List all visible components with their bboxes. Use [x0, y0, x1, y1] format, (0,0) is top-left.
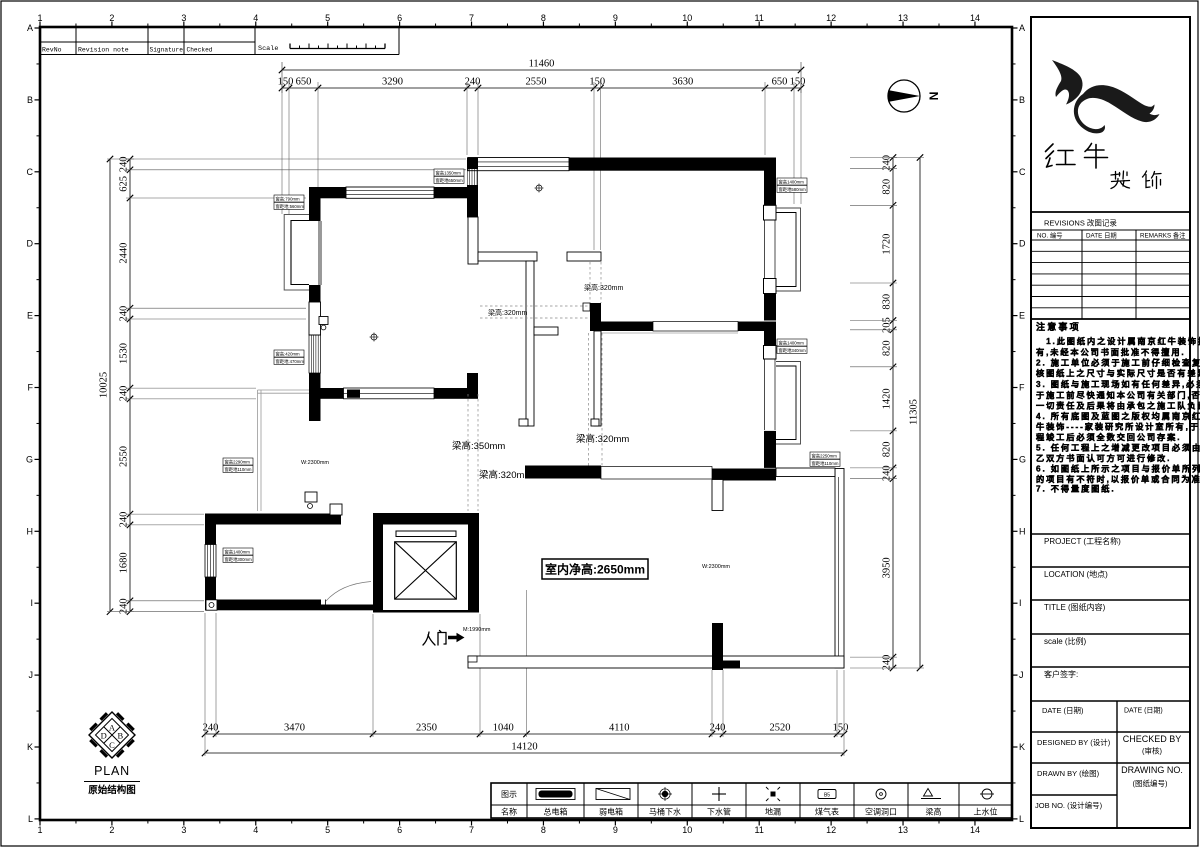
svg-text:K: K: [27, 742, 33, 752]
svg-text:14: 14: [970, 825, 980, 835]
svg-text:N: N: [927, 92, 941, 101]
svg-text:2520: 2520: [770, 723, 791, 734]
svg-text:11: 11: [755, 825, 764, 835]
svg-text:625: 625: [119, 176, 130, 192]
svg-text:客户签字:: 客户签字:: [1044, 669, 1078, 679]
svg-text:(图纸编号): (图纸编号): [1133, 778, 1168, 788]
svg-text:E: E: [1019, 311, 1025, 321]
svg-text:梁高:320mm: 梁高:320mm: [584, 283, 623, 292]
svg-text:650: 650: [772, 77, 788, 88]
svg-text:A: A: [1019, 23, 1025, 33]
svg-text:F: F: [1019, 383, 1025, 393]
svg-text:(审核): (审核): [1142, 746, 1162, 756]
svg-text:空调洞口: 空调洞口: [865, 807, 897, 817]
svg-text:H: H: [1019, 526, 1026, 536]
svg-text:2550: 2550: [526, 77, 547, 88]
svg-text:窗距地650mm: 窗距地650mm: [436, 177, 464, 184]
svg-text:4: 4: [253, 825, 258, 835]
svg-text:B: B: [117, 731, 123, 741]
svg-text:B: B: [27, 95, 33, 105]
svg-text:3. 图纸与施工现场如有任何差异,必须: 3. 图纸与施工现场如有任何差异,必须: [1036, 379, 1200, 389]
svg-text:3470: 3470: [284, 723, 305, 734]
svg-text:名称: 名称: [501, 807, 517, 817]
svg-text:有,未经本公司书面批准不得擅用.: 有,未经本公司书面批准不得擅用.: [1036, 347, 1186, 357]
svg-text:D: D: [27, 239, 34, 249]
svg-text:1.此图纸内之设计属南京红牛装饰拥: 1.此图纸内之设计属南京红牛装饰拥: [1036, 336, 1200, 346]
svg-text:牛装饰----家装研究所设计室所有,于工: 牛装饰----家装研究所设计室所有,于工: [1036, 422, 1200, 432]
svg-text:14120: 14120: [511, 742, 537, 753]
svg-text:梁高: 梁高: [926, 807, 942, 817]
svg-text:窗距地110mm: 窗距地110mm: [812, 460, 839, 467]
svg-text:B: B: [1019, 95, 1025, 105]
svg-text:K: K: [1019, 742, 1025, 752]
svg-text:9: 9: [613, 825, 618, 835]
svg-text:窗距地:560mm: 窗距地:560mm: [276, 203, 305, 210]
svg-text:scale (比例): scale (比例): [1044, 636, 1087, 646]
svg-text:窗高1350mm: 窗高1350mm: [436, 169, 462, 176]
svg-text:2550: 2550: [119, 446, 130, 467]
svg-text:2350: 2350: [416, 723, 437, 734]
svg-text:10: 10: [682, 825, 692, 835]
svg-text:乙双方书面认可方可进行修改.: 乙双方书面认可方可进行修改.: [1036, 453, 1171, 463]
svg-text:核图纸上之尺寸与实际尺寸是否有差异.: 核图纸上之尺寸与实际尺寸是否有差异.: [1036, 368, 1200, 378]
svg-text:DRAWN BY (绘图): DRAWN BY (绘图): [1037, 768, 1100, 778]
svg-text:D: D: [101, 731, 107, 741]
svg-text:1420: 1420: [882, 388, 893, 409]
svg-text:J: J: [1019, 670, 1024, 680]
svg-text:下水管: 下水管: [707, 807, 731, 817]
svg-text:M:1990mm: M:1990mm: [463, 627, 491, 633]
svg-text:窗高2250mm: 窗高2250mm: [812, 452, 838, 459]
svg-text:梁高:320mm: 梁高:320mm: [479, 469, 532, 481]
svg-text:8: 8: [541, 825, 546, 835]
svg-text:3290: 3290: [382, 77, 403, 88]
svg-text:程竣工后必须全数交回公司存案.: 程竣工后必须全数交回公司存案.: [1035, 432, 1181, 442]
svg-text:Checked: Checked: [187, 47, 213, 54]
svg-text:于施工前尽快通知本公司有关部门,否则: 于施工前尽快通知本公司有关部门,否则: [1036, 390, 1200, 400]
svg-text:窗高1400mm: 窗高1400mm: [225, 548, 251, 555]
svg-text:12: 12: [826, 825, 836, 835]
svg-text:6: 6: [397, 825, 402, 835]
svg-text:DRAWING NO.: DRAWING NO.: [1121, 765, 1183, 775]
svg-text:L: L: [28, 814, 33, 824]
svg-text:7: 7: [469, 825, 474, 835]
svg-text:上水位: 上水位: [974, 807, 998, 817]
svg-text:4110: 4110: [609, 723, 630, 734]
svg-text:室内净高:2650mm: 室内净高:2650mm: [545, 562, 645, 577]
svg-text:注意事项: 注意事项: [1036, 321, 1081, 332]
svg-text:1530: 1530: [119, 343, 130, 364]
svg-text:11305: 11305: [909, 399, 920, 425]
svg-text:830: 830: [882, 294, 893, 310]
svg-text:弱电箱: 弱电箱: [599, 807, 623, 817]
svg-text:3630: 3630: [672, 77, 693, 88]
svg-text:7. 不得量度图纸.: 7. 不得量度图纸.: [1036, 484, 1116, 494]
svg-text:820: 820: [882, 340, 893, 356]
svg-text:窗高1400mm: 窗高1400mm: [779, 339, 805, 346]
svg-text:马桶下水: 马桶下水: [649, 807, 681, 817]
svg-text:梁高:320mm: 梁高:320mm: [576, 433, 629, 445]
svg-text:一切责任及后果将由承包之施工队负责.: 一切责任及后果将由承包之施工队负责.: [1036, 401, 1200, 411]
svg-text:C: C: [1019, 167, 1026, 177]
svg-text:A: A: [109, 723, 116, 733]
svg-text:W:2300mm: W:2300mm: [301, 460, 329, 466]
svg-text:6. 如图纸上所示之项目与报价单所列: 6. 如图纸上所示之项目与报价单所列: [1036, 464, 1200, 474]
svg-text:B5: B5: [824, 793, 830, 799]
svg-text:LOCATION (地点): LOCATION (地点): [1044, 569, 1108, 579]
svg-text:I: I: [30, 598, 33, 608]
svg-text:PROJECT (工程名称): PROJECT (工程名称): [1044, 536, 1121, 546]
svg-text:W:2300mm: W:2300mm: [702, 564, 730, 570]
svg-text:D: D: [1019, 239, 1026, 249]
svg-text:J: J: [29, 670, 34, 680]
svg-text:窗高1400mm: 窗高1400mm: [779, 178, 805, 185]
svg-text:REMARKS 备注: REMARKS 备注: [1140, 231, 1186, 240]
svg-text:E: E: [27, 311, 33, 321]
svg-text:1: 1: [37, 825, 42, 835]
svg-text:Signature: Signature: [150, 47, 184, 54]
svg-text:L: L: [1019, 814, 1024, 824]
svg-text:DATE (日期): DATE (日期): [1042, 706, 1084, 715]
svg-text:A: A: [27, 23, 33, 33]
svg-text:窗距地110mm: 窗距地110mm: [225, 466, 252, 473]
svg-text:CHECKED BY: CHECKED BY: [1123, 734, 1182, 744]
svg-text:窗高:420mm: 窗高:420mm: [276, 350, 301, 357]
svg-text:820: 820: [882, 179, 893, 195]
svg-text:C: C: [109, 740, 115, 750]
svg-text:梁高:350mm: 梁高:350mm: [452, 440, 505, 452]
svg-text:窗高2290mm: 窗高2290mm: [225, 458, 251, 465]
svg-text:窗高:790mm: 窗高:790mm: [276, 195, 301, 202]
svg-text:G: G: [1019, 454, 1026, 464]
svg-text:3950: 3950: [882, 557, 893, 578]
svg-text:5: 5: [325, 825, 330, 835]
svg-text:梁高:320mm: 梁高:320mm: [488, 308, 527, 317]
svg-text:205: 205: [882, 317, 893, 333]
svg-text:DESIGNED BY (设计): DESIGNED BY (设计): [1037, 737, 1111, 747]
svg-text:650: 650: [296, 77, 312, 88]
svg-text:窗距地300mm: 窗距地300mm: [225, 556, 253, 563]
svg-text:3: 3: [181, 825, 186, 835]
svg-text:NO. 编号: NO. 编号: [1037, 231, 1063, 240]
svg-text:F: F: [28, 383, 34, 393]
svg-text:图示: 图示: [501, 790, 517, 799]
svg-text:2. 施工单位必须于施工前仔细检查复: 2. 施工单位必须于施工前仔细检查复: [1036, 358, 1200, 368]
svg-text:DATE 日期: DATE 日期: [1086, 232, 1117, 240]
svg-text:820: 820: [882, 442, 893, 458]
svg-text:C: C: [27, 167, 34, 177]
svg-text:TITLE (图纸内容): TITLE (图纸内容): [1044, 602, 1106, 612]
svg-text:5. 任何工程上之增减更改项目必须由甲: 5. 任何工程上之增减更改项目必须由甲: [1036, 443, 1200, 453]
svg-text:窗距地:470mm: 窗距地:470mm: [276, 358, 305, 365]
svg-text:13: 13: [898, 825, 908, 835]
svg-text:11460: 11460: [529, 59, 555, 70]
svg-text:I: I: [1019, 598, 1022, 608]
svg-text:2440: 2440: [119, 243, 130, 264]
svg-text:窗距地340mm: 窗距地340mm: [779, 347, 807, 354]
svg-text:煤气表: 煤气表: [815, 807, 839, 817]
svg-text:Scale: Scale: [258, 45, 278, 53]
svg-text:10025: 10025: [99, 372, 110, 398]
svg-text:1720: 1720: [882, 234, 893, 255]
svg-text:的项目有不符时,以报价单或合同为准.: 的项目有不符时,以报价单或合同为准.: [1036, 474, 1200, 484]
svg-text:1040: 1040: [493, 723, 514, 734]
svg-text:Revision note: Revision note: [78, 47, 129, 54]
svg-text:总电箱: 总电箱: [544, 807, 568, 817]
svg-text:REVISIONS 改图记录: REVISIONS 改图记录: [1044, 218, 1117, 228]
svg-text:原始结构图: 原始结构图: [88, 784, 136, 796]
svg-text:PLAN: PLAN: [94, 764, 130, 778]
svg-text:JOB NO. (设计编号): JOB NO. (设计编号): [1035, 800, 1103, 810]
svg-text:RevNo: RevNo: [42, 47, 62, 54]
svg-text:DATE (日期): DATE (日期): [1124, 707, 1163, 715]
svg-text:G: G: [26, 454, 33, 464]
svg-text:H: H: [27, 526, 34, 536]
svg-text:4. 所有底图及蓝图之版权均属南京红: 4. 所有底图及蓝图之版权均属南京红: [1036, 411, 1200, 421]
svg-text:2: 2: [109, 825, 114, 835]
svg-text:窗距地580mm: 窗距地580mm: [779, 186, 807, 193]
svg-text:1680: 1680: [119, 552, 130, 573]
svg-text:地漏: 地漏: [765, 807, 781, 817]
